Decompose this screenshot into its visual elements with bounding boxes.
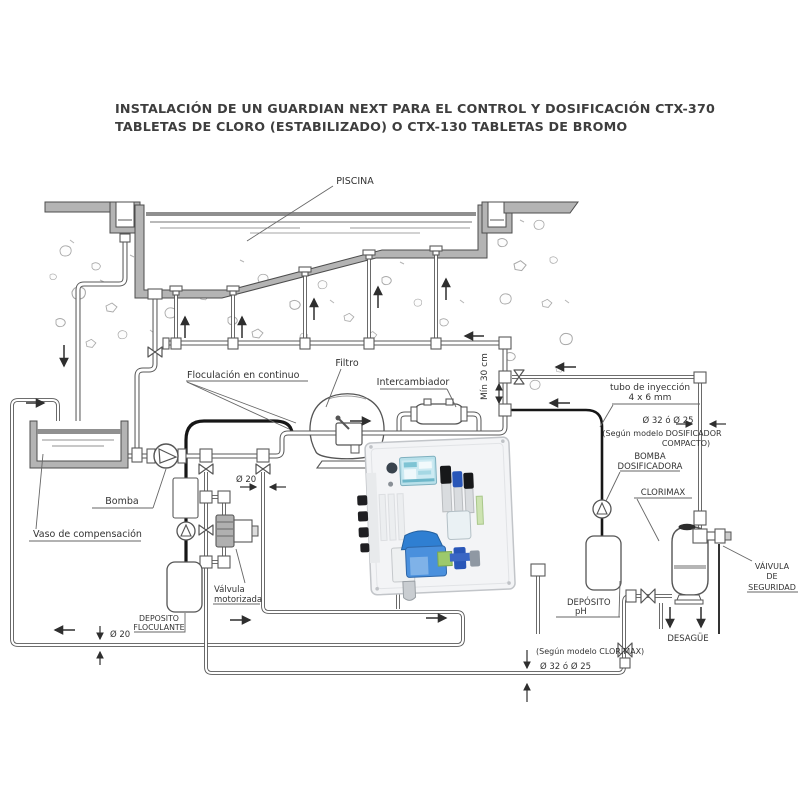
label-diam-20-bottom: Ø 20 xyxy=(110,629,130,640)
label-piscina: PISCINA xyxy=(336,176,374,187)
label-desague: DESAGÜE xyxy=(667,633,708,644)
label-diam-32-right: Ø 32 ó Ø 25 xyxy=(642,415,693,426)
concrete-texture xyxy=(50,220,572,389)
label-deposito-ph-1: DEPÓSITO xyxy=(567,596,611,608)
label-diam-20-mid: Ø 20 xyxy=(236,474,256,485)
clorimax-inlet-tee xyxy=(693,529,707,543)
device-outlet-fitting xyxy=(531,564,545,576)
flocculant-tank xyxy=(167,562,202,612)
motorized-valve-body xyxy=(216,515,234,547)
label-valvula-motorizada-2: motorizada xyxy=(214,595,262,605)
main-drain-fitting xyxy=(148,289,162,299)
ph-dosing-system xyxy=(586,500,621,590)
label-valvula-seguridad-3: SEGURIDAD xyxy=(748,583,796,592)
label-valvula-seguridad-1: VÁIVULA xyxy=(755,560,790,571)
guardian-next-device xyxy=(355,437,516,603)
label-deposito-floculante-2: FLOCULANTE xyxy=(133,623,184,632)
label-clorimax: CLORIMAX xyxy=(641,488,686,498)
injection-tube xyxy=(511,410,602,536)
suction-union xyxy=(132,448,142,462)
ph-tank xyxy=(586,536,621,590)
clorimax-vessel xyxy=(672,524,731,604)
label-bomba: Bomba xyxy=(105,496,138,507)
recirculation-pump xyxy=(147,444,186,468)
label-deposito-ph-2: pH xyxy=(575,607,587,617)
compensation-tank xyxy=(30,421,128,468)
label-segun-clorimax: (Según modelo CLORIMAX) xyxy=(536,647,644,656)
installation-diagram: PISCINA Floculación en continuo Filtro I… xyxy=(0,0,800,800)
injection-tee xyxy=(499,404,511,416)
clorimax-bottom-valve xyxy=(641,589,655,603)
label-diam-32-bottom: Ø 32 ó Ø 25 xyxy=(540,661,591,672)
main-line-tee-1 xyxy=(200,449,212,462)
diagram-page: INSTALACIÓN DE UN GUARDIAN NEXT PARA EL … xyxy=(0,0,800,800)
pool-deck-right xyxy=(504,202,578,213)
dosificador-union xyxy=(694,511,706,525)
pool-deck-left xyxy=(45,202,110,212)
label-segun-dosificador-1: (Según modelo DOSIFICADOR xyxy=(602,429,722,438)
safety-valve xyxy=(715,529,725,543)
label-bomba-dosificadora-1: BOMBA xyxy=(634,452,666,462)
label-deposito-floculante-1: DEPOSITO xyxy=(139,614,179,623)
return-tee xyxy=(499,371,511,383)
label-valvula-seguridad-2: DE xyxy=(766,572,777,581)
label-bomba-dosificadora-2: DOSIFICADORA xyxy=(618,462,683,472)
device-screen xyxy=(399,456,436,486)
flocculant-doser xyxy=(173,478,198,518)
motorized-valve-actuator xyxy=(234,520,252,542)
label-segun-dosificador-2: COMPACTO) xyxy=(662,439,710,448)
label-valvula-motorizada-1: Válvula xyxy=(214,585,245,595)
heat-exchanger xyxy=(411,399,467,424)
label-floculacion: Floculación en continuo xyxy=(187,370,300,381)
device-flow-chamber xyxy=(447,511,471,540)
label-tubo-inyeccion-1: tubo de inyección xyxy=(610,382,690,393)
label-min-30-cm: Mín 30 cm xyxy=(480,353,490,400)
label-intercambiador: Intercambiador xyxy=(377,377,450,388)
label-tubo-inyeccion-2: 4 x 6 mm xyxy=(629,393,672,403)
main-line-tee-2 xyxy=(257,449,269,462)
label-vaso-compensacion: Vaso de compensación xyxy=(33,529,142,540)
pool-water-surface xyxy=(118,212,504,233)
label-filtro: Filtro xyxy=(335,358,358,369)
